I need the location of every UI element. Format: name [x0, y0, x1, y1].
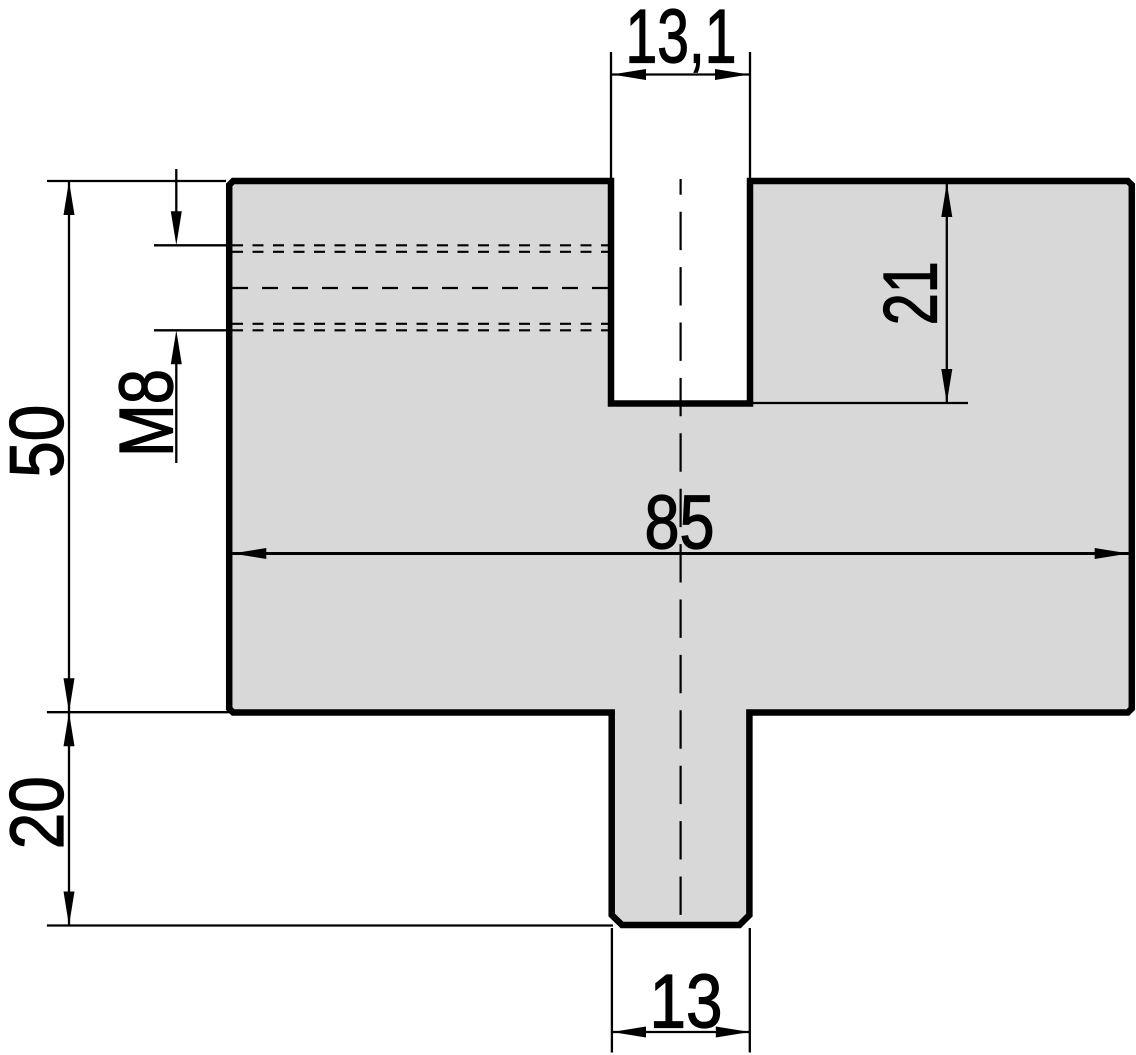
- svg-text:20: 20: [0, 776, 80, 849]
- svg-text:13: 13: [650, 960, 723, 1045]
- svg-text:13,1: 13,1: [626, 0, 737, 80]
- svg-text:21: 21: [869, 261, 954, 325]
- svg-text:85: 85: [645, 481, 715, 566]
- svg-text:50: 50: [0, 405, 80, 478]
- svg-text:M8: M8: [104, 369, 189, 457]
